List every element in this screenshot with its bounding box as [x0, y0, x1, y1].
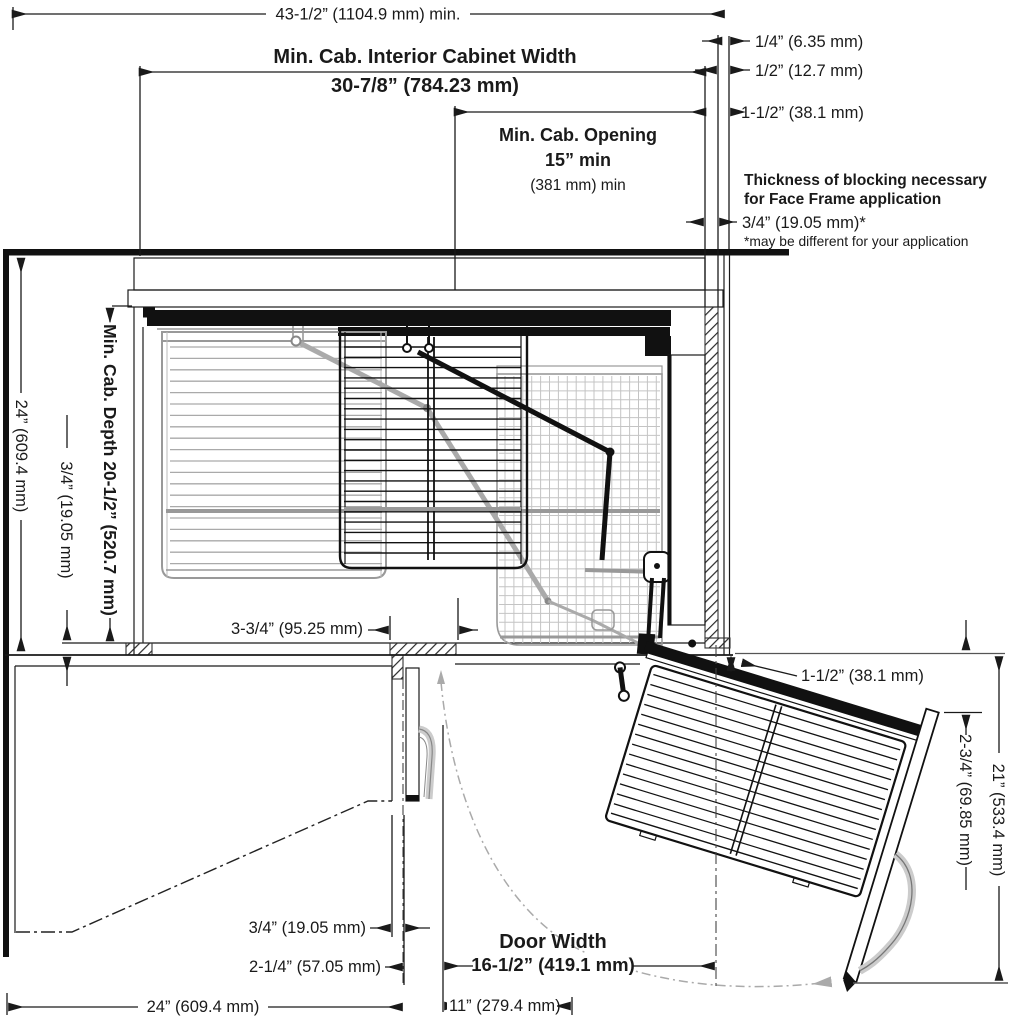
- arm-elbow-pivot: [606, 448, 615, 457]
- reveal-one-half-label: 1-1/2” (38.1 mm): [741, 104, 864, 122]
- open-basket-wires: [614, 674, 900, 879]
- open-bracket-pivot2: [618, 690, 630, 702]
- opening-value: 15” min: [545, 150, 611, 170]
- opening-width-label: 11” (279.4 mm): [449, 997, 561, 1015]
- dim-overall-width: 43-1/2” (1104.9 mm) min.: [13, 4, 724, 30]
- reveal-half-label: 1/2” (12.7 mm): [755, 62, 863, 80]
- door-clearance-label: 2-1/4” (57.05 mm): [249, 958, 381, 976]
- reveal-quarter-label: 1/4” (6.35 mm): [755, 33, 863, 51]
- dim-wall-depth: 24” (609.4 mm): [12, 259, 30, 650]
- swing-arc-start-arrow: [437, 670, 445, 684]
- dim-face-frame-left: 3/4” (19.05 mm): [57, 415, 75, 686]
- basket-wire: [617, 794, 864, 869]
- cab-depth-label: Min. Cab. Depth 20-1/2” (520.7 mm): [100, 324, 120, 616]
- cabinet-back-rail: [134, 258, 705, 290]
- blocking-footnote: *may be different for your application: [744, 234, 968, 249]
- cabinet-top-stretcher: [128, 290, 723, 307]
- ghost-basket-rail: [497, 366, 662, 374]
- door-handle-inner: [419, 737, 427, 797]
- basket-wire: [620, 784, 867, 859]
- face-frame-thickness-label: 3/4” (19.05 mm): [57, 461, 75, 578]
- face-frame: [5, 643, 733, 679]
- door-overhang-label: 2-3/4” (69.85 mm): [956, 734, 974, 866]
- pullout-frame-rim: [338, 327, 670, 336]
- blocking-note-line2: for Face Frame application: [744, 191, 941, 208]
- pullout-basket-wires: [344, 347, 521, 553]
- ghost-arm-elbow: [423, 404, 431, 412]
- blind-area-boundary: [16, 801, 392, 932]
- dim-door-width: Door Width 16-1/2” (419.1 mm): [446, 931, 714, 975]
- basket-wire: [623, 774, 870, 849]
- dim-counter-depth: 24” (609.4 mm): [7, 993, 402, 1017]
- dim-cab-depth: Min. Cab. Depth 20-1/2” (520.7 mm): [100, 306, 132, 640]
- left-wall: [3, 249, 9, 957]
- ghost-link: [592, 620, 640, 644]
- stored-basket: [162, 326, 386, 578]
- adjacent-door: [406, 668, 419, 801]
- stored-basket-wires: [170, 347, 382, 564]
- rail-end-block: [645, 336, 671, 356]
- stile-width-label: 3-3/4” (95.25 mm): [231, 620, 363, 638]
- rail-end-left: [143, 308, 155, 318]
- dim-door-clearance: 2-1/4” (57.05 mm): [249, 725, 443, 1012]
- cabinet-installation-diagram: 43-1/2” (1104.9 mm) min. Min. Cab. Inter…: [0, 0, 1024, 1024]
- opening-metric: (381 mm) min: [530, 177, 626, 194]
- face-frame-return-leg: [392, 655, 403, 679]
- dim-opening-width: 11” (279.4 mm): [446, 995, 573, 1015]
- hinge-pin: [687, 638, 697, 648]
- face-frame-stile-center: [390, 643, 456, 655]
- basket-wire: [632, 744, 879, 819]
- door-width-value: 16-1/2” (419.1 mm): [471, 954, 635, 975]
- hinge-link: [648, 578, 652, 642]
- rail-bar: [147, 310, 671, 326]
- right-callouts: 1/4” (6.35 mm) 1/2” (12.7 mm) 1-1/2” (38…: [686, 33, 987, 307]
- back-wall: [3, 249, 789, 256]
- blocking-foot: [705, 638, 730, 648]
- basket-wire: [614, 804, 861, 879]
- face-frame-blocking: [705, 307, 718, 638]
- blocking-note-line1: Thickness of blocking necessary: [744, 172, 987, 189]
- basket-wire: [635, 734, 882, 809]
- ghost-arm-link2: [427, 408, 548, 601]
- dim-stile-width: 3-3/4” (95.25 mm): [231, 598, 478, 640]
- wall-depth-label: 24” (609.4 mm): [12, 400, 30, 513]
- overall-width-label: 43-1/2” (1104.9 mm) min.: [276, 6, 461, 24]
- door-thickness-label: 3/4” (19.05 mm): [249, 919, 366, 937]
- opening-title: Min. Cab. Opening: [499, 125, 657, 145]
- face-frame-stile-left: [126, 643, 152, 655]
- diagram-canvas: 43-1/2” (1104.9 mm) min. Min. Cab. Inter…: [0, 0, 1024, 1024]
- blocking-value-label: 3/4” (19.05 mm)*: [742, 214, 866, 232]
- door-width-title: Door Width: [499, 931, 607, 953]
- hinge-gap-label: 1-1/2” (38.1 mm): [801, 667, 924, 685]
- pullout-bracket-pivot: [403, 344, 411, 352]
- open-rail: [644, 641, 926, 737]
- pullout-side-panel: [668, 355, 705, 625]
- open-basket-bottom: [611, 813, 858, 888]
- pullout-depth-label: 21” (533.4 mm): [989, 764, 1007, 877]
- counter-depth-label: 24” (609.4 mm): [147, 998, 260, 1016]
- hinge-link: [660, 578, 664, 638]
- interior-width-value: 30-7/8” (784.23 mm): [331, 75, 519, 97]
- dim-door-overhang: 2-3/4” (69.85 mm): [944, 713, 982, 891]
- ghost-arm-pivot: [292, 337, 301, 346]
- basket-wire: [626, 764, 873, 839]
- blind-corner-counter: [15, 666, 432, 933]
- adjacent-door-cap: [406, 795, 419, 801]
- interior-width-title: Min. Cab. Interior Cabinet Width: [273, 46, 576, 68]
- basket-wire: [629, 754, 876, 829]
- pullout-bracket-pivot: [425, 344, 433, 352]
- arm-hinge-pin: [654, 563, 660, 569]
- basket-wire: [638, 724, 885, 799]
- dim-cab-opening: Min. Cab. Opening 15” min (381 mm) min: [455, 106, 705, 290]
